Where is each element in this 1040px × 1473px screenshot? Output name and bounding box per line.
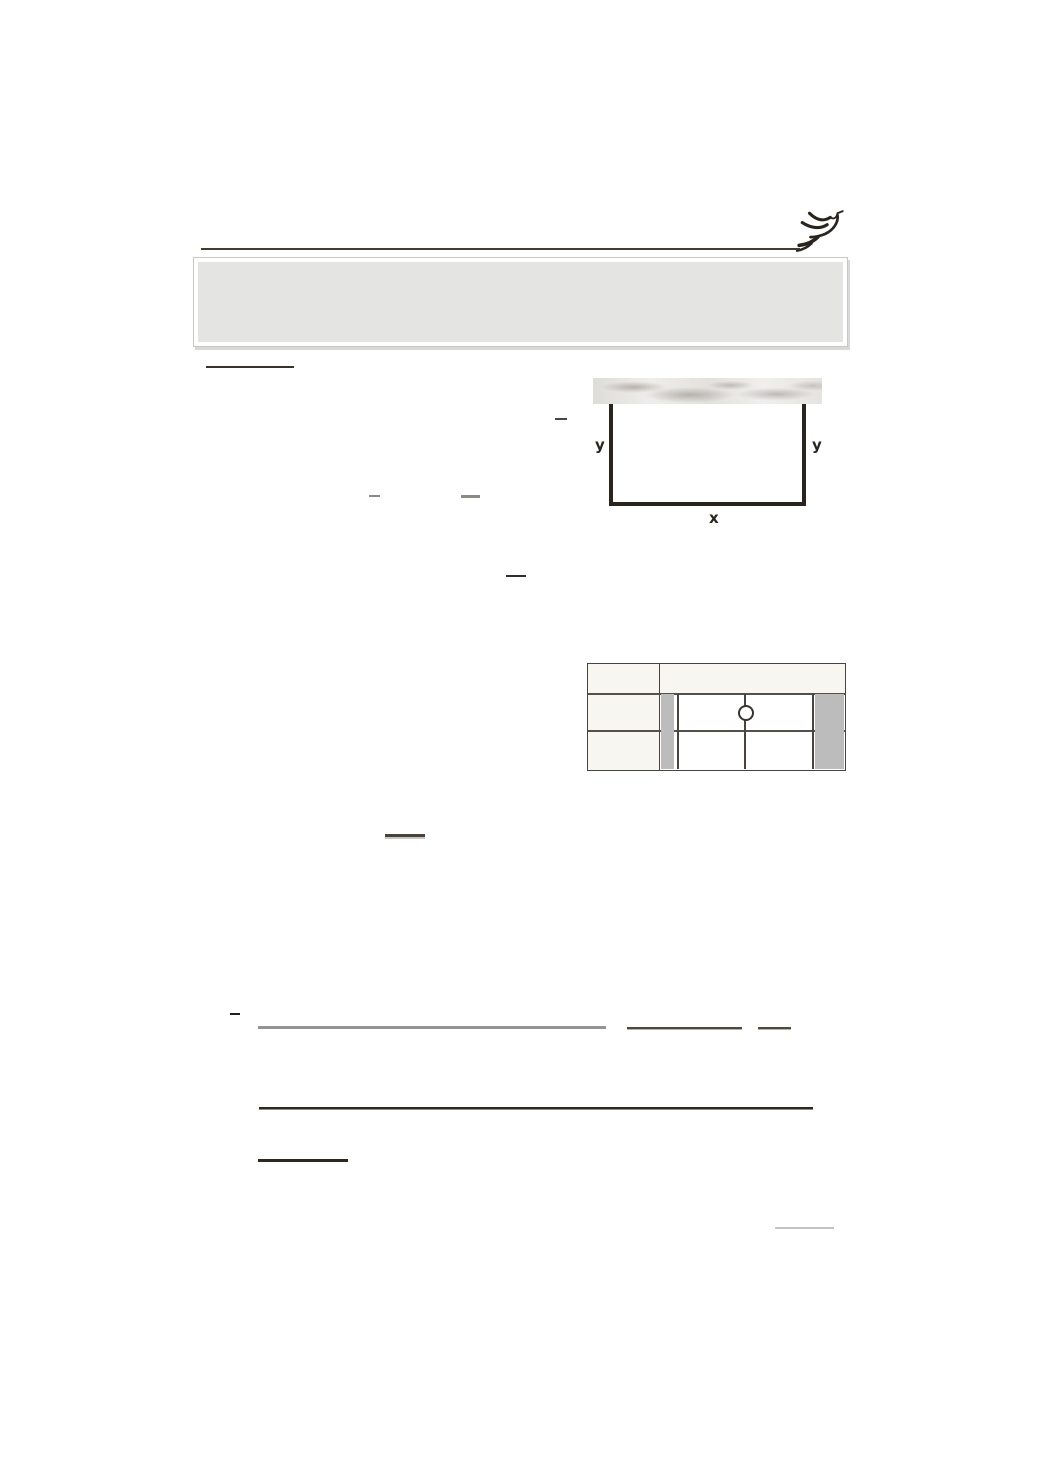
table-gray-band-left (661, 694, 674, 769)
faint-blank-line (775, 1227, 834, 1229)
wall-rectangle-figure: y y x (593, 378, 822, 528)
blank-dash (461, 495, 480, 498)
table-gray-band-right (815, 694, 844, 769)
table-header-cell (660, 664, 845, 693)
fraction-bar (385, 834, 425, 837)
number-line-right-edge (812, 694, 814, 769)
table-row-divider (588, 730, 845, 732)
label-y-left: y (595, 438, 605, 453)
document-page: y y x (0, 0, 1040, 1473)
open-circle-marker (738, 705, 754, 721)
heading-underline (206, 366, 294, 368)
figure-bottom-side (609, 502, 806, 506)
answer-blank-long (258, 1026, 606, 1029)
number-line-left-edge (677, 694, 679, 769)
figure-left-side (609, 404, 613, 504)
title-panel (193, 257, 848, 347)
blank-dash (369, 495, 380, 497)
label-x-bottom: x (709, 511, 719, 526)
figure-right-side (802, 404, 806, 504)
blank-dash (230, 1013, 240, 1015)
header-rule (201, 248, 800, 250)
dove-logo-icon (796, 208, 850, 260)
answer-blank-medium (627, 1027, 742, 1029)
label-y-right: y (812, 438, 822, 453)
answer-blank-short (758, 1027, 791, 1029)
number-line-table (587, 663, 846, 771)
writing-rule (259, 1107, 813, 1109)
table-header-divider (588, 693, 845, 695)
heading-underline (258, 1159, 348, 1162)
table-left-column (588, 664, 660, 770)
blank-dash (555, 418, 567, 420)
marble-wall-band (593, 378, 822, 404)
blank-dash (506, 575, 526, 577)
